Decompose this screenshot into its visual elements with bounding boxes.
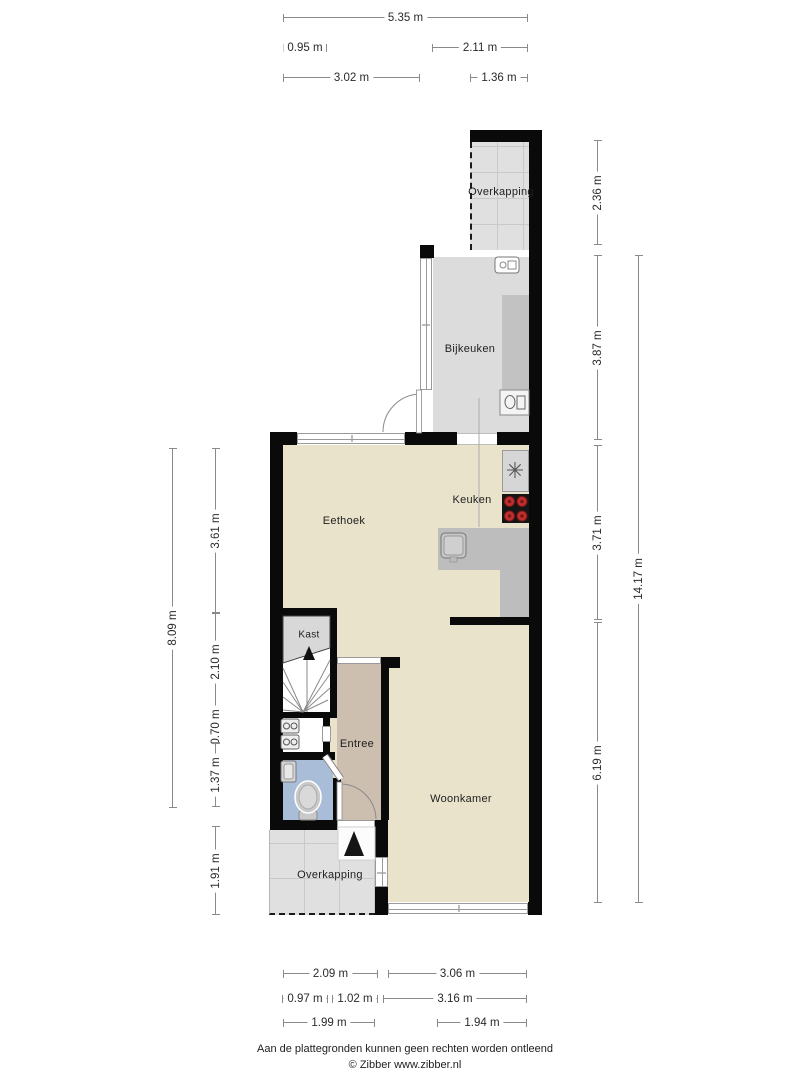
room-label-overkapping-bottom: Overkapping (297, 869, 363, 881)
window-woonkamer-bottom (388, 903, 528, 914)
room-label-entree: Entree (340, 738, 374, 750)
dim-left-toilet-height: 1.37 m (215, 743, 216, 807)
window-eethoek-top (297, 433, 405, 444)
kitchen-counter-vertical (500, 528, 529, 617)
passage-bijkeuken-keuken (457, 433, 497, 445)
dim-bottom-woonkamer-a: 3.06 m (388, 973, 527, 974)
window-bijkeuken-left (420, 258, 432, 390)
wall-bijkeuken-top (420, 245, 434, 258)
meter-closet-floor (283, 718, 323, 752)
room-label-eethoek: Eethoek (323, 515, 365, 527)
wall-bijkeuken-right (529, 250, 542, 445)
wall-toilet-right (333, 778, 341, 820)
room-label-woonkamer: Woonkamer (430, 793, 492, 805)
dim-top-total-width: 5.35 m (283, 17, 528, 18)
dim-top-bijkeuken-width: 2.11 m (432, 47, 528, 48)
dim-bottom-woonkamer-b: 3.16 m (383, 998, 527, 999)
room-toilet-floor (283, 760, 333, 820)
dim-bottom-entree-width: 1.02 m (332, 998, 378, 999)
wall-main-right (529, 432, 542, 915)
meter-closet-door (322, 726, 331, 742)
dim-right-woonkamer-height: 6.19 m (597, 622, 598, 903)
bijkeuken-door-arc (383, 390, 422, 433)
dim-bottom-overkapping-width: 1.99 m (283, 1022, 375, 1023)
window-woonkamer-side (375, 857, 388, 887)
dim-bottom-window-width: 1.94 m (437, 1022, 527, 1023)
dim-left-stairs-height: 2.10 m (215, 613, 216, 710)
dim-top-left-small: 0.95 m (283, 47, 327, 48)
passage-eethoek-entree (337, 657, 381, 664)
wall-kast-top (283, 608, 337, 616)
wall-bottom-right-corner (528, 902, 542, 915)
dim-left-overkapping-height: 1.91 m (215, 826, 216, 915)
kitchen-counter-horizontal (438, 528, 500, 570)
floorplan-page: ✳ Overkapping Bijkeuken Keuken Eethoek K… (0, 0, 810, 1080)
dim-top-eethoek-width: 3.02 m (283, 77, 420, 78)
dim-right-keuken-height: 3.71 m (597, 445, 598, 620)
wall-main-left (270, 432, 283, 830)
dim-left-total-height: 8.09 m (172, 448, 173, 808)
footer-disclaimer: Aan de plattegronden kunnen geen rechten… (0, 1043, 810, 1055)
footer-copyright: © Zibber www.zibber.nl (0, 1059, 810, 1071)
room-label-overkapping-top: Overkapping (468, 186, 534, 198)
dim-top-overkapping-width: 1.36 m (470, 77, 528, 78)
room-label-kast: Kast (298, 630, 319, 641)
dim-right-total-height: 14.17 m (638, 255, 639, 903)
dim-left-meter-height: 0.70 m (215, 710, 216, 743)
dim-right-bijkeuken-height: 3.87 m (597, 255, 598, 440)
wall-front (270, 820, 337, 830)
wall-keuken-woonkamer (450, 617, 542, 625)
wall-woonkamer-left-b (375, 887, 388, 915)
dim-bottom-toilet-width: 0.97 m (282, 998, 328, 999)
bijkeuken-counter (502, 295, 529, 390)
dim-right-overkapping-height: 2.36 m (597, 140, 598, 245)
dim-left-eethoek-height: 3.61 m (215, 448, 216, 613)
snowflake-icon: ✳ (506, 458, 524, 484)
wall-woonkamer-left-a (375, 820, 388, 857)
room-label-keuken: Keuken (452, 494, 491, 506)
room-label-bijkeuken: Bijkeuken (445, 343, 495, 355)
wall-meter-toilet (283, 752, 335, 760)
front-door-threshold (337, 820, 375, 830)
wall-stairs-entree (330, 608, 337, 718)
dim-bottom-entree-overkapping: 2.09 m (283, 973, 378, 974)
wall-entree-right (381, 657, 389, 820)
wall-main-top-mid (405, 432, 457, 445)
